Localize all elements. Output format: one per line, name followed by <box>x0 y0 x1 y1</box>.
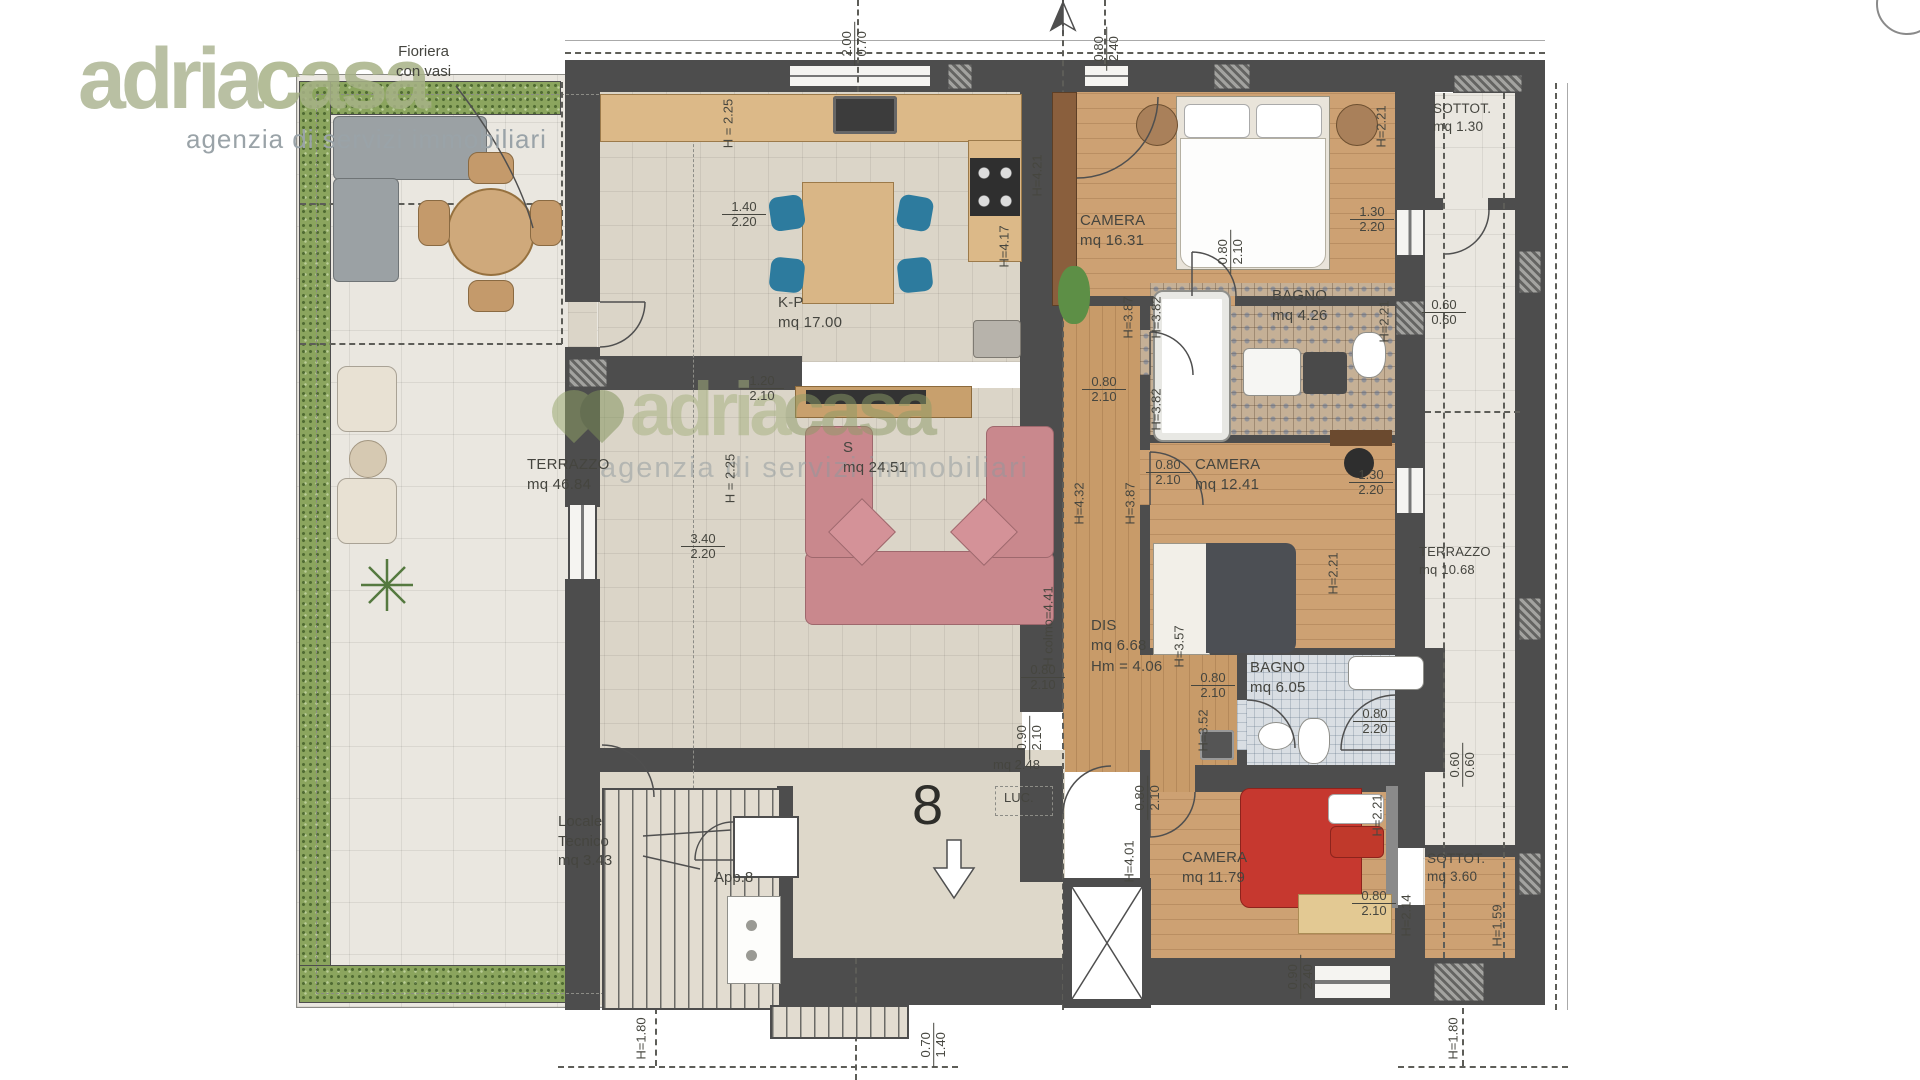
dim-shaft-upper: 0.600.60 <box>1422 298 1466 328</box>
height-label: H=4.01 <box>1122 832 1137 892</box>
dim-door-landing: 0.902.10 <box>1015 716 1045 760</box>
brand-logo: adria casa agenzia di servizi immobiliar… <box>78 36 547 155</box>
height-label: H = 2.25 <box>721 94 736 154</box>
room-label-camera2: CAMERAmq 12.41 <box>1195 455 1260 496</box>
dim-door-bagno1: 0.802.10 <box>1082 375 1126 405</box>
annotation-planter: Fiorieracon vasi <box>396 42 451 81</box>
height-label: H=3.52 <box>1196 701 1211 761</box>
floorplan-canvas: adria casa agenzia di servizi immobiliar… <box>0 0 1920 1080</box>
elevator-x <box>1072 887 1142 999</box>
brand-tagline: agenzia di servizi immobiliari <box>186 124 547 155</box>
height-label: H=3.82 <box>1149 288 1164 348</box>
leader-tech-2 <box>643 856 700 869</box>
height-label: H=3.87 <box>1123 474 1138 534</box>
dim-door-camera3-bottom: 0.902.40 <box>1286 955 1316 999</box>
room-label-camera1: CAMERAmq 16.31 <box>1080 211 1145 252</box>
height-label: H=1.59 <box>1490 896 1505 956</box>
dim-window-kitchen-top: 2.000.70 <box>840 22 870 66</box>
stair-down-arrow <box>934 840 974 898</box>
height-label: H=2.14 <box>1399 886 1414 946</box>
height-label-ridge: H colmo=4.41 <box>1041 572 1056 682</box>
annotation-apartment: App.8 <box>714 868 753 888</box>
room-label-terrazzo-right: TERRAZZOmq 10.68 <box>1419 543 1491 578</box>
door-arc-dis-landing <box>1063 766 1111 814</box>
door-arc-tech-room <box>695 822 733 860</box>
dim-door-bagno2-terrace: 0.802.20 <box>1353 707 1397 737</box>
door-arc-kitchen-terrace <box>600 302 645 347</box>
height-label: H=2.21 <box>1326 544 1341 604</box>
dim-door-bagno2: 0.802.10 <box>1191 671 1235 701</box>
height-label: H=2.21 <box>1370 786 1385 846</box>
dim-window-kitchen-left: 1.402.20 <box>722 200 766 230</box>
annotation-skylight: LUC. <box>1004 790 1034 807</box>
room-label-bagno1: BAGNOmq 4.26 <box>1272 286 1328 327</box>
dim-shaft-lower: 0.600.60 <box>1448 743 1478 787</box>
dim-window-bottom: 0.701.40 <box>919 1023 949 1067</box>
plan-linework <box>0 0 1920 1080</box>
dim-door-kitchen-terrace: 1.202.10 <box>740 374 784 404</box>
room-label-kitchen: K-Pmq 17.00 <box>778 293 842 334</box>
room-label-sottotetto2: SOTTOT.mq 3.60 <box>1427 850 1485 886</box>
brand-name-primary: adria <box>78 36 259 122</box>
height-label: H=3.87 <box>1121 288 1136 348</box>
door-arc-sottotetto1 <box>1445 210 1489 254</box>
height-label: H=3.57 <box>1172 617 1187 677</box>
room-label-bagno2: BAGNOmq 6.05 <box>1250 658 1306 699</box>
height-label: H=2.21 <box>1374 97 1389 157</box>
dim-door-sottotetto2: 0.802.10 <box>1352 889 1396 919</box>
dim-window-camera1-top: 0.802.40 <box>1092 27 1122 71</box>
dim-door-camera3: 0.802.10 <box>1133 776 1163 820</box>
height-label: H=1.80 <box>634 1009 649 1069</box>
corner-circle <box>1877 0 1920 34</box>
room-label-living: Smq 24.51 <box>843 438 907 479</box>
height-label: H=3.82 <box>1149 380 1164 440</box>
height-label: H = 2.25 <box>723 449 738 509</box>
height-label: H=4.32 <box>1072 474 1087 534</box>
room-label-disimpegno: DISmq 6.68Hm = 4.06 <box>1091 616 1162 677</box>
height-label: H=2.21 <box>1377 292 1392 352</box>
height-label: H=4.21 <box>1030 146 1045 206</box>
dim-window-camera1-right: 1.302.20 <box>1350 205 1394 235</box>
north-arrow-light <box>1063 2 1075 30</box>
leader-tech-1 <box>643 830 731 836</box>
stair-unit-number: 8 <box>912 772 943 837</box>
room-label-camera3: CAMERAmq 11.79 <box>1182 848 1247 889</box>
dim-window-living: 3.402.20 <box>681 532 725 562</box>
dim-door-camera1: 0.802.10 <box>1216 230 1246 274</box>
north-arrow-dark <box>1051 2 1063 30</box>
door-arc-stair-entry <box>602 745 654 797</box>
annotation-tech-room: LocaleTecnicomq 3.43 <box>558 812 612 871</box>
terrace-plant <box>361 559 413 611</box>
dim-window-camera2: 1.302.20 <box>1349 468 1393 498</box>
room-label-terrazzo-left: TERRAZZOmq 46.84 <box>527 455 609 496</box>
dim-door-camera2: 0.802.10 <box>1146 458 1190 488</box>
door-arc-bagno2-entry <box>1247 700 1295 748</box>
door-arc-camera1-entry <box>1077 97 1158 178</box>
room-label-sottotetto1: SOTTOT.mq 1.30 <box>1433 100 1491 136</box>
height-label: H=1.80 <box>1446 1009 1461 1069</box>
height-label: H=4.17 <box>997 217 1012 277</box>
